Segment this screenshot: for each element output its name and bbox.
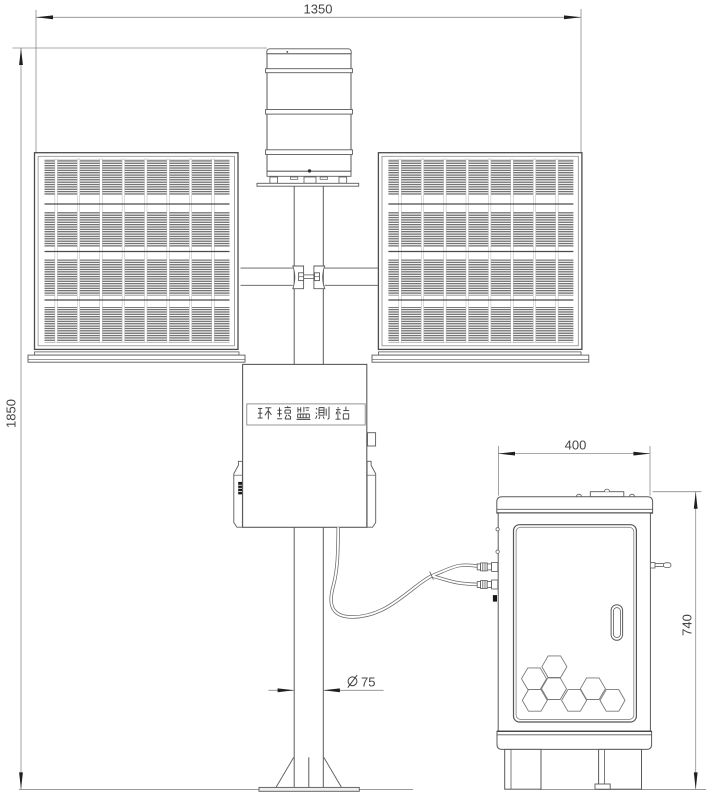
- svg-text:1350: 1350: [304, 2, 333, 17]
- svg-text:1850: 1850: [4, 399, 19, 428]
- svg-text:740: 740: [680, 614, 695, 636]
- svg-text:75: 75: [361, 675, 375, 690]
- svg-text:400: 400: [565, 438, 587, 453]
